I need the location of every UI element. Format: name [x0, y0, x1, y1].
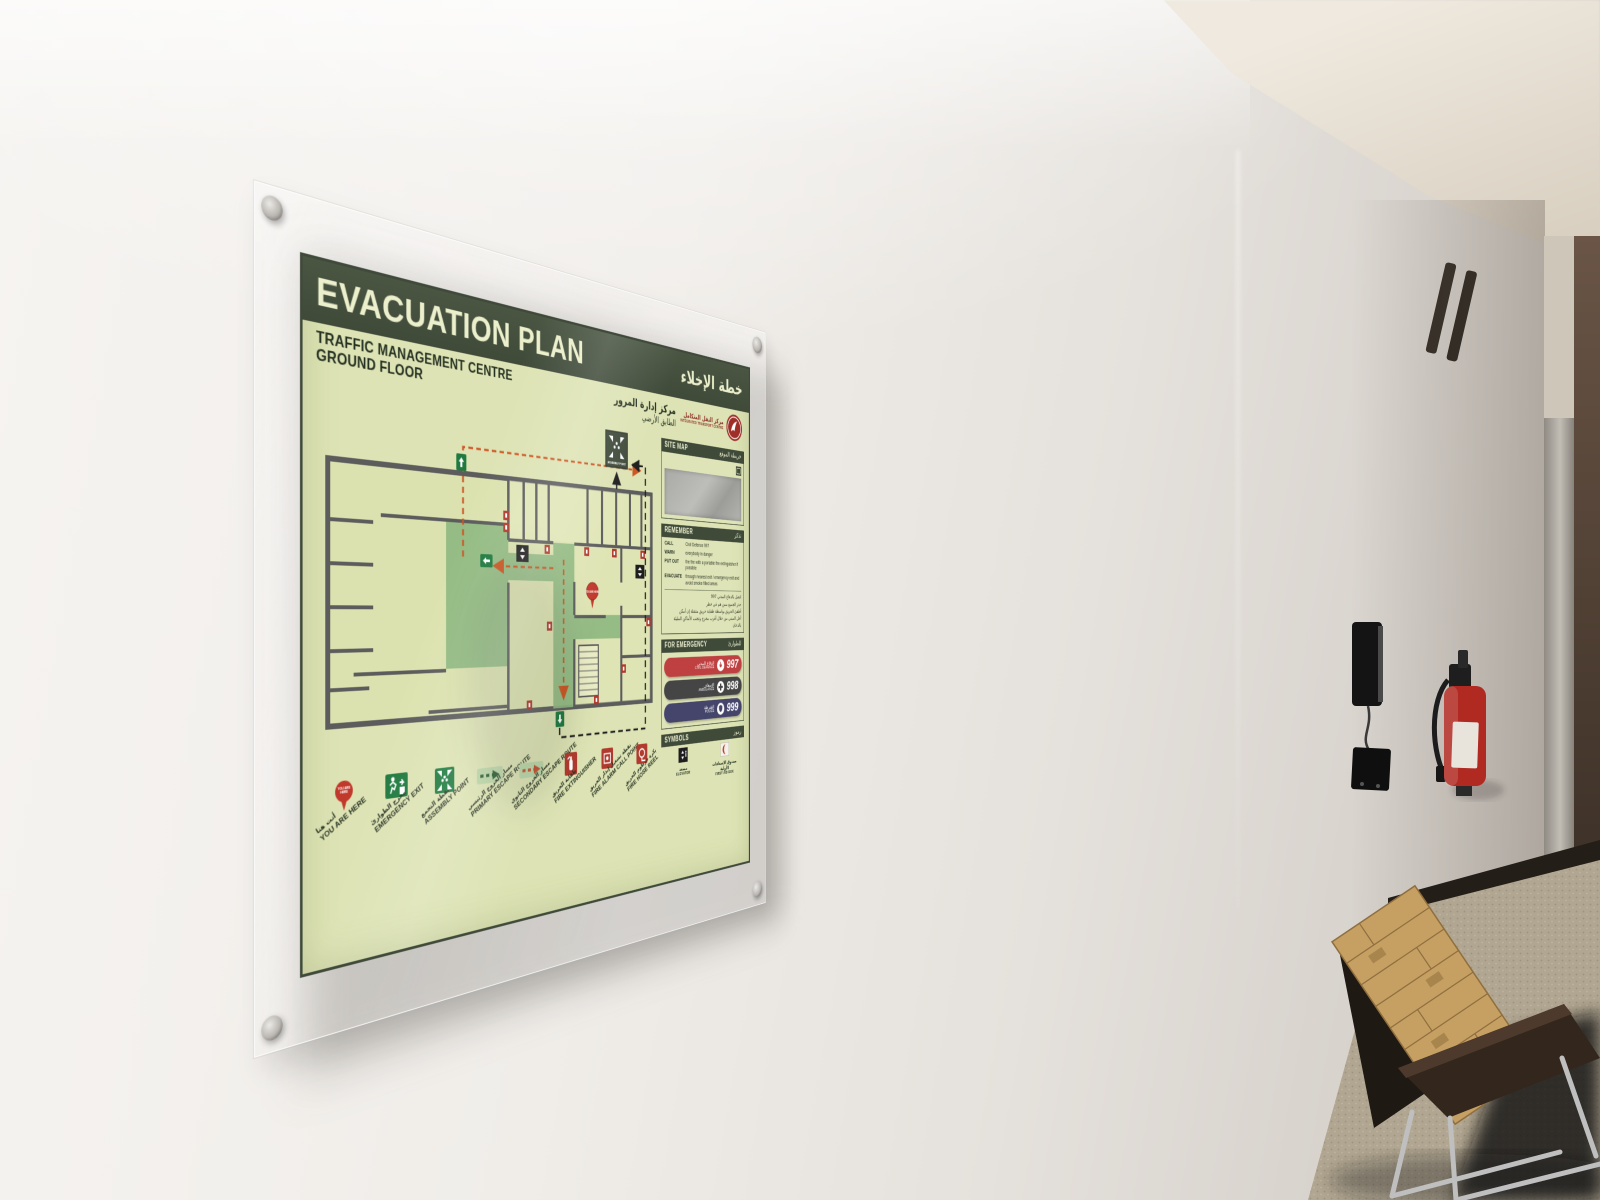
for-emergency-title-arabic: للطوارئ — [728, 640, 741, 647]
for-emergency-section: FOR EMERGENCY للطوارئ الدفاع المدنيCIVIL… — [661, 638, 744, 730]
doorway-upper — [1544, 236, 1576, 426]
site-map-section: SITE MAP خريطة الموقع — [661, 438, 744, 526]
symbols-section: SYMBOLS رموز مصعد — [661, 726, 744, 788]
hallway-photo: EVACUATION PLAN خطة الإخلاء TRAFFIC MANA… — [0, 0, 1600, 1200]
emergency-number-police: الشرطةPOLICE 999 — [664, 698, 741, 724]
medical-cross-icon — [717, 681, 724, 693]
symbols-title-arabic: رموز — [734, 728, 741, 736]
sign-sidebar: SITE MAP خريطة الموقع REMEMBER تذكر — [661, 438, 744, 837]
legend-item-primary-route: مسار الخروج الرئيسيPRIMARY ESCAPE ROUTE — [469, 760, 510, 878]
remember-title-arabic: تذكر — [734, 532, 741, 539]
symbols-title: SYMBOLS — [665, 734, 689, 745]
symbol-elevator: مصعد ELEVATOR — [667, 746, 700, 785]
evacuation-plan-sign: EVACUATION PLAN خطة الإخلاء TRAFFIC MANA… — [300, 252, 750, 978]
remember-title: REMEMBER — [665, 526, 693, 536]
assembly-point-icon: ASSEMBLY POINT — [606, 430, 628, 469]
itc-logo: مركز النقل المتكامل INTEGRATED TRANSPORT… — [680, 403, 742, 443]
hallway-props — [0, 0, 1600, 1200]
building-name-arabic: مركز إدارة المرور الطابق الأرضي — [614, 392, 676, 428]
site-map-image — [665, 468, 742, 521]
remember-arabic-text: اتصل بالدفاع المدني 997 حذر الجميع ممن ه… — [665, 589, 742, 630]
legend-item-you-are-here: YOU ARE HERE أنت هناYOU ARE HERE — [318, 777, 370, 910]
elevator-icon — [679, 747, 688, 763]
you-are-here-pin-label: YOU ARE HERE — [586, 590, 599, 594]
itc-emblem-icon — [726, 412, 742, 443]
exit-sign-bottom — [556, 711, 565, 727]
emergency-number-civil-defence: الدفاع المدنيCIVIL DEFENCE 997 — [664, 655, 741, 678]
site-map-title-arabic: خريطة الموقع — [719, 450, 741, 460]
remember-section: REMEMBER تذكر CALLCivil Defence 997 WARN… — [661, 523, 744, 634]
for-emergency-title: FOR EMERGENCY — [665, 641, 707, 650]
flame-icon — [717, 659, 724, 671]
stairs — [579, 645, 599, 697]
legend-item-fire-alarm-call-point: نقطة تشغيل إنذار الحريقFIRE ALARM CALL P… — [590, 746, 624, 852]
legend-item-secondary-route: مسار الخروج الثانويSECONDARY ESCAPE ROUT… — [512, 755, 550, 868]
first-aid-crescent-icon — [720, 742, 728, 757]
floor-plan-map: YOU ARE HERE ASSEMBLY POINT — [313, 379, 659, 779]
legend-item-fire-extinguisher: طفاية الحريقFIRE EXTINGUISHER — [553, 750, 589, 859]
legend-item-fire-hose-reel: بكرة خرطوم الحريقFIRE HOSE REEL — [626, 742, 658, 844]
legend-item-emergency-exit: مخرج الطوارئEMERGENCY EXIT — [372, 771, 420, 898]
legend-item-assembly-point: نقطة التجمعASSEMBLY POINT — [422, 765, 466, 887]
sign-content: YOU ARE HERE ASSEMBLY POINT — [303, 377, 749, 912]
exit-sign-top — [456, 453, 466, 471]
emergency-number-ambulance: الإسعافAMBULANCE 998 — [664, 676, 741, 700]
police-badge-icon — [717, 702, 724, 715]
sign-title-arabic: خطة الإخلاء — [681, 365, 743, 400]
exit-sign-left — [480, 554, 492, 568]
floor-plan-area: YOU ARE HERE ASSEMBLY POINT — [313, 379, 659, 910]
sign-print: EVACUATION PLAN خطة الإخلاء TRAFFIC MANA… — [300, 252, 750, 978]
symbol-first-aid-box: صندوق الإسعافات الأولية FIRST AID BOX — [709, 741, 739, 778]
site-map-marker-icon — [736, 466, 741, 476]
